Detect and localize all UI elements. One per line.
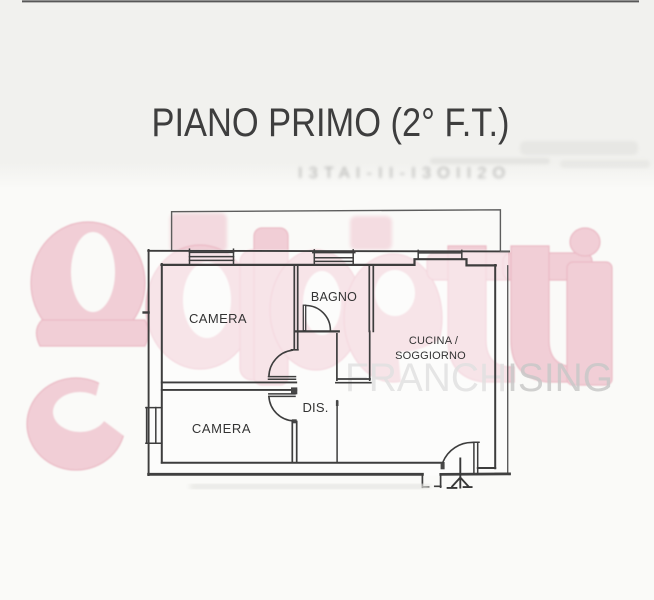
svg-text:SOGGIORNO: SOGGIORNO (395, 350, 466, 362)
svg-text:CAMERA: CAMERA (192, 421, 251, 436)
svg-text:CAMERA: CAMERA (189, 311, 247, 326)
svg-text:PIANO PRIMO (2° F.T.): PIANO PRIMO (2° F.T.) (152, 101, 510, 145)
svg-text:CUCINA /: CUCINA / (409, 335, 459, 347)
svg-text:DIS.: DIS. (302, 400, 328, 415)
svg-text:BAGNO: BAGNO (311, 290, 357, 304)
svg-text:I3TAI-II-I3OII2O: I3TAI-II-I3OII2O (298, 165, 511, 182)
